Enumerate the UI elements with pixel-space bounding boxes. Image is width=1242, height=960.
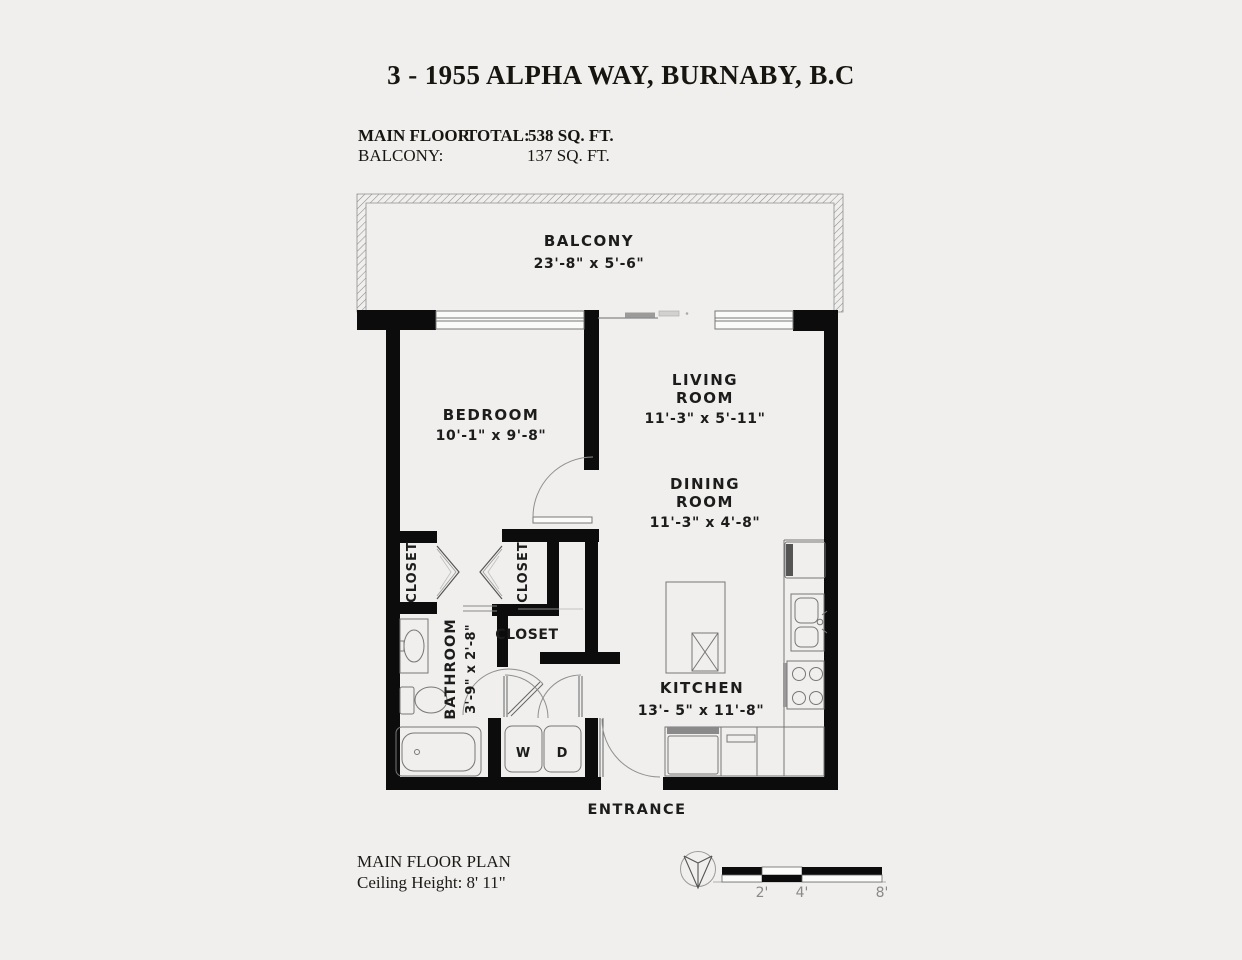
dining-room-dims: 11'-3" x 4'-8" [650,515,761,531]
bathroom-dims: 3'-9" x 2'-8" [464,624,479,714]
living-room-dims: 11'-3" x 5'-11" [644,411,765,427]
floor-plan-page: 3 - 1955 ALPHA WAY, BURNABY, B.C MAIN FL… [0,0,1242,960]
closet-right-bifold-door [480,546,502,599]
entrance-door [600,718,660,777]
closet-right-label: CLOSET [516,541,531,603]
bedroom-window [436,311,584,329]
fridge [785,542,825,578]
kitchen-island [666,582,725,673]
ceiling-height: Ceiling Height: 8' 11" [357,872,511,893]
balcony-sliding-door [598,311,688,318]
washer-label: W [516,746,530,761]
bedroom-label: BEDROOM [443,406,540,424]
bathtub [396,727,481,776]
living-room-window [715,311,793,329]
bathroom-vanity-sink [400,619,428,673]
north-arrow-icon [681,852,716,889]
plan-name: MAIN FLOOR PLAN [357,851,511,872]
dining-room-label-line1: DINING [670,475,740,493]
footer: MAIN FLOOR PLAN Ceiling Height: 8' 11" [357,851,511,893]
bathroom-label: BATHROOM [443,618,459,719]
kitchen-label: KITCHEN [660,679,744,697]
scale-tick-8: 8' [876,885,889,901]
toilet [400,687,447,714]
stove [783,661,824,709]
scale-bar: 2' 4' 8' [713,867,888,901]
floor-plan-drawing: BALCONY 23'-8" x 5'-6" BEDROOM 10'-1" x … [0,0,1242,960]
closet-left-bifold-door [437,546,459,599]
balcony-hatch-border [357,194,843,312]
kitchen-dims: 13'- 5" x 11'-8" [638,703,764,719]
dryer-label: D [557,746,568,761]
bedroom-dims: 10'-1" x 9'-8" [436,428,547,444]
scale-tick-4: 4' [796,885,809,901]
closet-entry-label: CLOSET [495,627,558,643]
entrance-label: ENTRANCE [588,802,687,818]
living-room-label-line2: ROOM [676,389,734,407]
scale-tick-2: 2' [756,885,769,901]
walls [357,310,838,790]
balcony-label: BALCONY [544,232,634,250]
balcony-dims: 23'-8" x 5'-6" [534,256,645,272]
living-room-label-line1: LIVING [672,371,738,389]
dining-room-label-line2: ROOM [676,493,734,511]
closet-left-label: CLOSET [405,541,420,603]
kitchen-sink [791,594,827,651]
kitchen-counter-bottom [665,727,824,776]
